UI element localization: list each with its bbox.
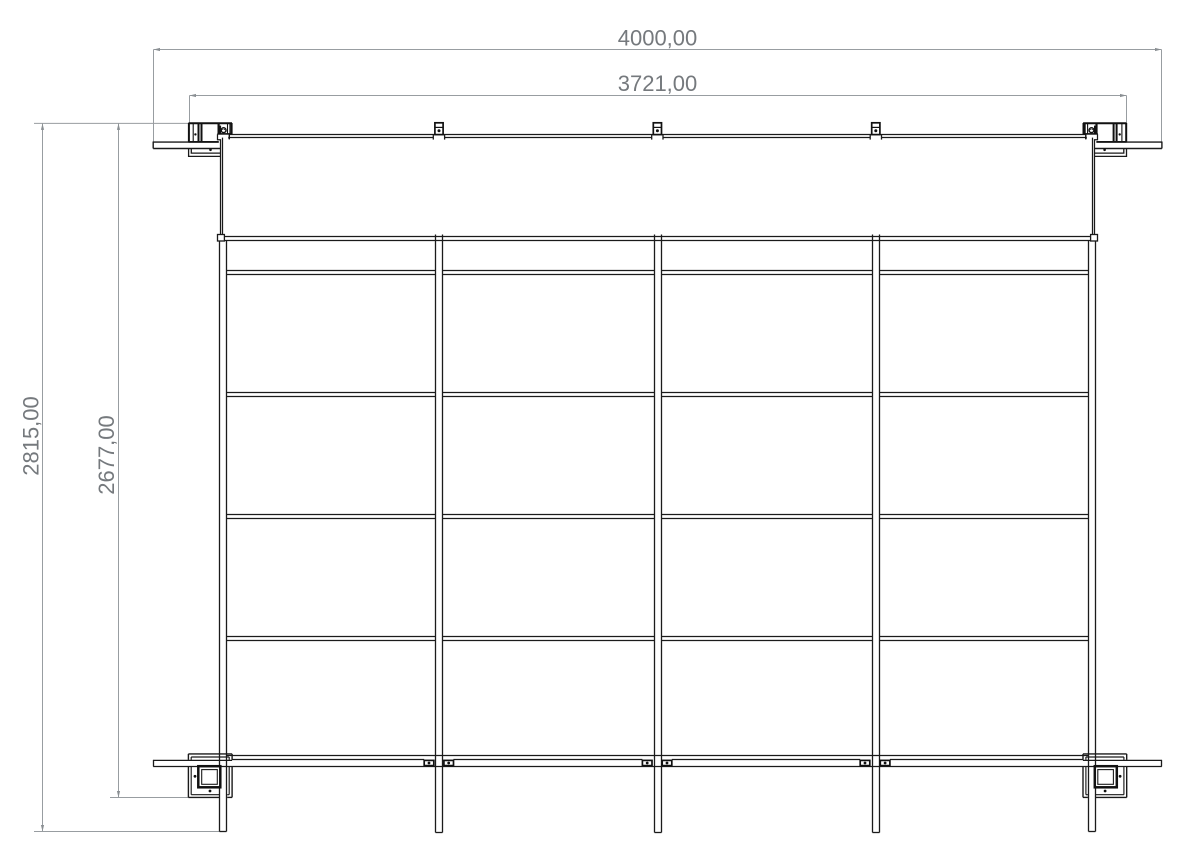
- svg-text:2815,00: 2815,00: [19, 396, 44, 476]
- svg-text:4000,00: 4000,00: [618, 26, 698, 51]
- svg-text:3721,00: 3721,00: [618, 71, 698, 96]
- svg-text:2677,00: 2677,00: [94, 415, 119, 495]
